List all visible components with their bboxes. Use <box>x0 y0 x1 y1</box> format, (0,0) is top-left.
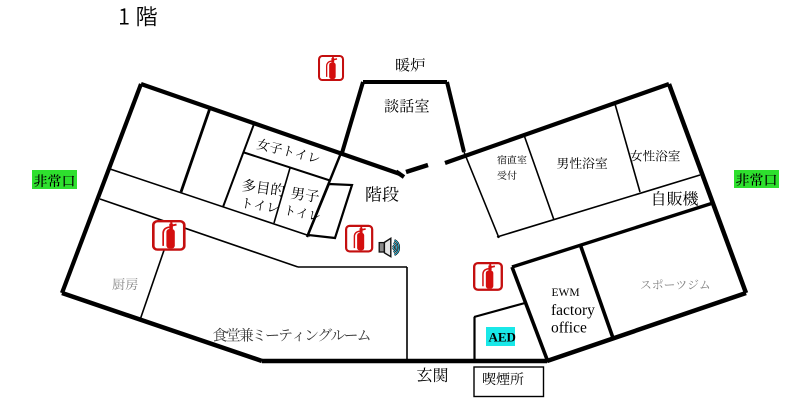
svg-text:EWM: EWM <box>552 287 580 299</box>
svg-text:factory: factory <box>551 302 595 319</box>
svg-text:office: office <box>551 320 587 337</box>
svg-text:AED: AED <box>489 330 516 345</box>
